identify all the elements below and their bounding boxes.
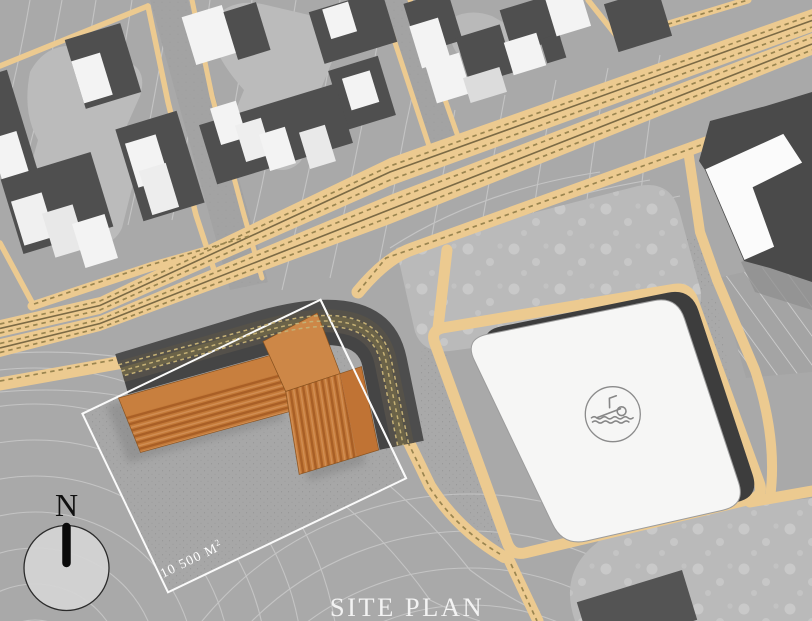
svg-text:SITE PLAN: SITE PLAN — [330, 592, 484, 621]
svg-text:N: N — [55, 487, 78, 523]
